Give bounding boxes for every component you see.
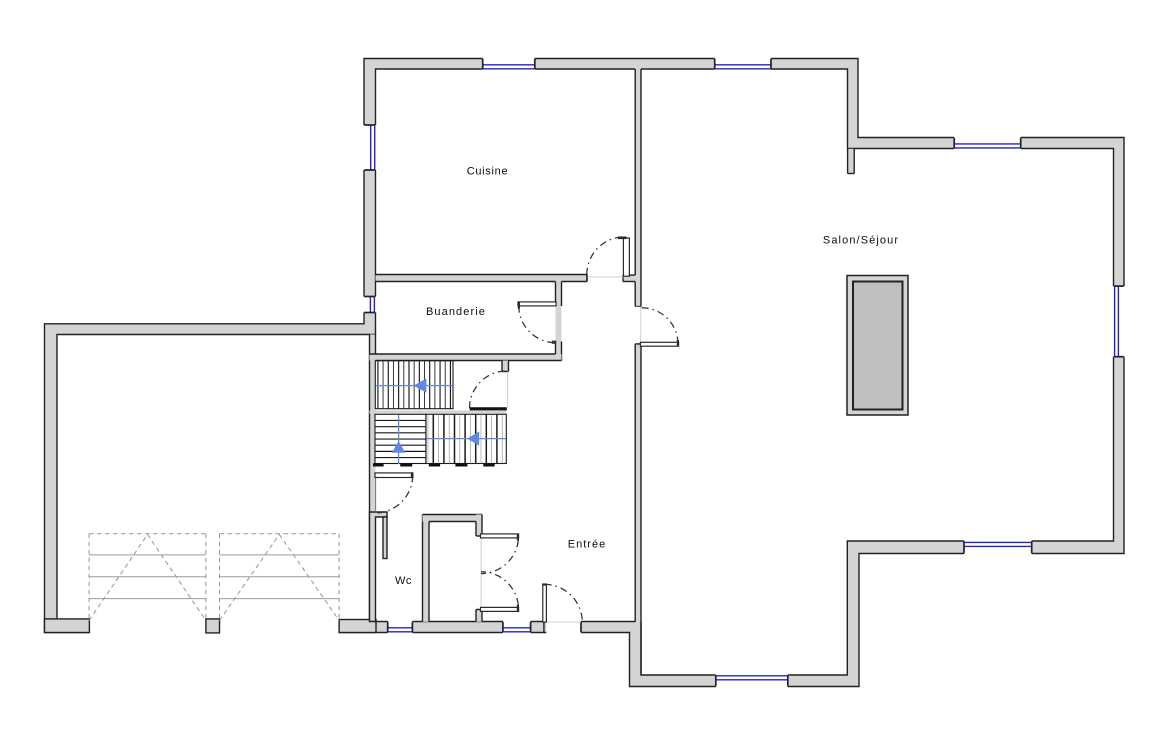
svg-text:Wc: Wc bbox=[395, 575, 412, 587]
svg-text:Buanderie: Buanderie bbox=[426, 306, 486, 318]
svg-text:Salon/Séjour: Salon/Séjour bbox=[823, 235, 899, 247]
svg-text:Cuisine: Cuisine bbox=[467, 166, 509, 178]
svg-text:Entrée: Entrée bbox=[568, 539, 606, 551]
